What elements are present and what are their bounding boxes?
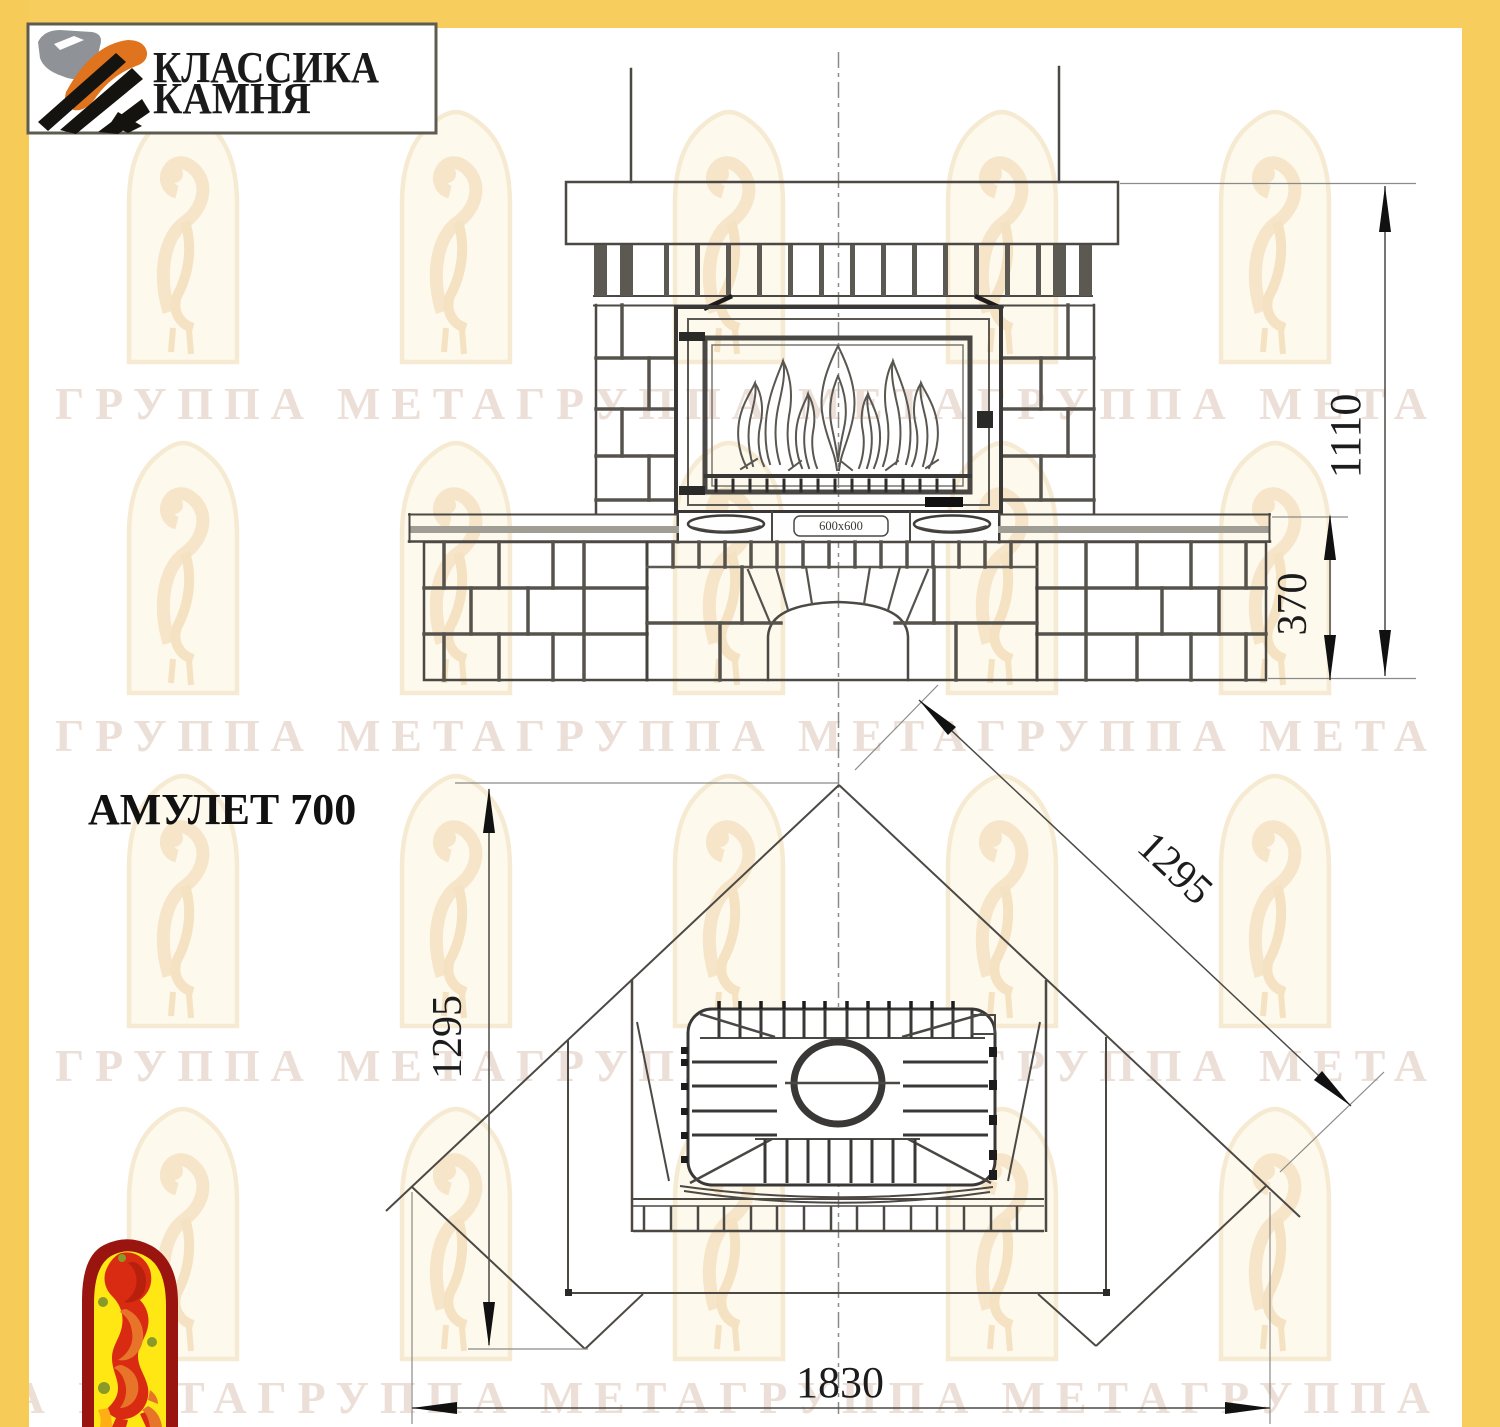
svg-text:1830: 1830 xyxy=(796,1358,884,1407)
svg-text:1295: 1295 xyxy=(425,995,471,1079)
svg-text:АМУЛЕТ 700: АМУЛЕТ 700 xyxy=(88,785,356,834)
svg-text:600х600: 600х600 xyxy=(819,519,863,533)
svg-text:1110: 1110 xyxy=(1321,394,1370,479)
svg-text:370: 370 xyxy=(1270,573,1316,636)
svg-text:КАМНЯ: КАМНЯ xyxy=(153,74,311,123)
